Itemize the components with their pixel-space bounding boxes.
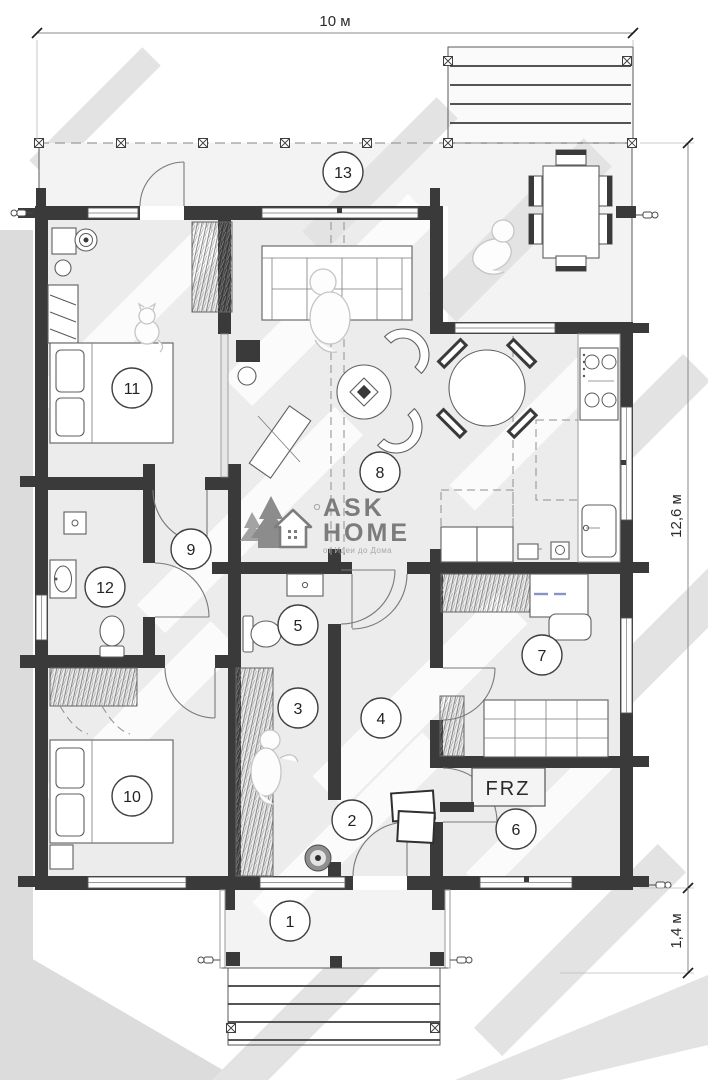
shoe-cabinet <box>391 791 435 843</box>
room-label-13: 13 <box>323 152 363 192</box>
faucet-icon <box>450 957 472 963</box>
floor-plan-canvas: FRZ 10 м <box>0 0 708 1080</box>
bedside-bench <box>50 845 73 869</box>
rug-icon <box>305 845 331 871</box>
toilet-icon <box>100 616 124 657</box>
stove-icon <box>580 348 618 420</box>
room-label-8: 8 <box>360 452 400 492</box>
wardrobe-room11 <box>192 222 232 312</box>
svg-text:13: 13 <box>334 165 352 182</box>
room-label-11: 11 <box>112 368 152 408</box>
round-dining-table <box>436 337 539 439</box>
post-icon <box>623 57 632 66</box>
window-north-1 <box>88 208 138 218</box>
dimension-label-width: 10 м <box>319 13 350 30</box>
mirror-icon <box>75 229 97 251</box>
logo-tagline: от Идеи до Дома <box>323 546 392 555</box>
bed-room7 <box>484 700 608 757</box>
desk-room7 <box>441 574 530 612</box>
post-icon <box>281 139 290 148</box>
svg-text:5: 5 <box>294 618 303 635</box>
post-icon <box>117 139 126 148</box>
partition-room11 <box>221 334 228 477</box>
post-icon <box>431 1024 440 1033</box>
window-south-2 <box>260 877 345 888</box>
room-label-5: 5 <box>278 605 318 645</box>
logo-text-line1: ASK <box>323 494 385 522</box>
wardrobe-room10 <box>50 668 137 706</box>
bench-room6 <box>440 802 474 812</box>
room-label-1: 1 <box>270 901 310 941</box>
small-appliance-icon <box>518 544 542 559</box>
svg-text:11: 11 <box>124 381 141 398</box>
room-label-2: 2 <box>332 800 372 840</box>
desk-side <box>530 574 588 617</box>
porch-rail-right <box>445 890 450 968</box>
coffee-table <box>337 365 391 419</box>
window-west-bath <box>36 595 47 640</box>
post-icon <box>363 139 372 148</box>
wardrobe-room7 <box>440 696 464 756</box>
svg-text:1: 1 <box>286 914 295 931</box>
svg-text:7: 7 <box>538 648 547 665</box>
freezer-label: FRZ <box>486 778 531 800</box>
window-south-1 <box>88 877 186 888</box>
svg-text:4: 4 <box>377 711 386 728</box>
post-icon <box>628 139 637 148</box>
room-label-4: 4 <box>361 698 401 738</box>
counter-cabinet-2 <box>477 527 513 562</box>
svg-text:3: 3 <box>294 701 303 718</box>
svg-text:2: 2 <box>348 813 357 830</box>
bed-room11 <box>50 343 173 443</box>
svg-text:9: 9 <box>187 542 196 559</box>
room-label-7: 7 <box>522 635 562 675</box>
dresser <box>48 285 78 343</box>
small-appliance-icon <box>551 542 569 559</box>
desk-chair <box>549 614 591 640</box>
logo-text-line2: HOME <box>323 519 410 547</box>
svg-text:10: 10 <box>123 789 141 806</box>
counter-cabinet-1 <box>441 527 477 562</box>
room-label-12: 12 <box>85 567 125 607</box>
window-east-kitchen <box>620 407 632 520</box>
svg-text:8: 8 <box>376 465 385 482</box>
window-south-3 <box>480 876 572 888</box>
wc-sink-icon <box>287 574 323 596</box>
room-label-6: 6 <box>496 809 536 849</box>
post-icon <box>227 1024 236 1033</box>
stool <box>55 260 71 276</box>
post-icon <box>444 57 453 66</box>
svg-text:12: 12 <box>96 580 114 597</box>
faucet-icon <box>198 957 220 963</box>
post-icon <box>35 139 44 148</box>
room-label-10: 10 <box>112 776 152 816</box>
deck-floor <box>448 47 633 143</box>
faucet-icon <box>636 212 658 218</box>
dimension-right: 12,6 м <box>640 138 694 893</box>
post-icon <box>199 139 208 148</box>
window-kitchen-north <box>455 323 555 333</box>
bed-room10 <box>50 740 173 843</box>
window-north-2 <box>262 207 418 218</box>
kitchen-sink-icon <box>582 505 616 557</box>
svg-text:6: 6 <box>512 822 521 839</box>
bath-sink-icon <box>50 560 76 598</box>
room-label-9: 9 <box>171 529 211 569</box>
floor-plan-page: FRZ 10 м <box>0 0 708 1080</box>
room-label-3: 3 <box>278 688 318 728</box>
porch-rail-left <box>220 890 225 968</box>
post-icon <box>444 139 453 148</box>
dimension-label-porch: 1,4 м <box>668 913 685 948</box>
dimension-label-height: 12,6 м <box>668 494 685 538</box>
washing-machine-icon <box>64 512 86 534</box>
window-east-room7 <box>621 618 632 713</box>
